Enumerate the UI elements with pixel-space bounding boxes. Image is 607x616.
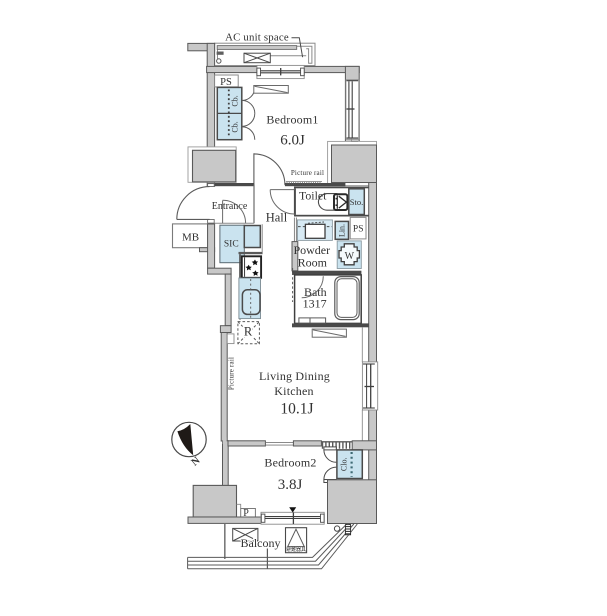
svg-text:PS: PS — [220, 77, 232, 88]
svg-text:10.1J: 10.1J — [280, 401, 313, 418]
svg-text:Bedroom2: Bedroom2 — [264, 456, 316, 470]
svg-text:Entrance: Entrance — [212, 201, 248, 212]
svg-text:MB: MB — [182, 231, 199, 243]
svg-text:Sto.: Sto. — [350, 197, 363, 207]
svg-text:Clo.: Clo. — [339, 458, 348, 472]
svg-text:PS: PS — [353, 225, 364, 235]
svg-text:Lin.: Lin. — [337, 224, 346, 237]
svg-text:Room: Room — [298, 256, 328, 270]
svg-text:Cb.: Cb. — [230, 95, 239, 106]
svg-text:避難器具: 避難器具 — [286, 546, 306, 553]
svg-text:Picture rail: Picture rail — [291, 169, 324, 177]
svg-text:Picture rail: Picture rail — [228, 357, 236, 390]
svg-text:SIC: SIC — [224, 239, 239, 249]
svg-text:Living Dining: Living Dining — [259, 369, 330, 383]
svg-text:Toilet: Toilet — [299, 188, 327, 202]
svg-text:1317: 1317 — [303, 297, 327, 311]
svg-text:Balcony: Balcony — [241, 536, 281, 550]
svg-text:W: W — [345, 251, 355, 262]
svg-text:Cb.: Cb. — [230, 121, 239, 132]
svg-text:6.0J: 6.0J — [280, 133, 305, 149]
svg-text:R: R — [244, 325, 253, 339]
svg-text:Kitchen: Kitchen — [274, 384, 313, 398]
svg-text:AC unit space: AC unit space — [225, 32, 289, 44]
svg-text:Bedroom1: Bedroom1 — [266, 113, 318, 127]
svg-text:3.8J: 3.8J — [278, 477, 303, 493]
